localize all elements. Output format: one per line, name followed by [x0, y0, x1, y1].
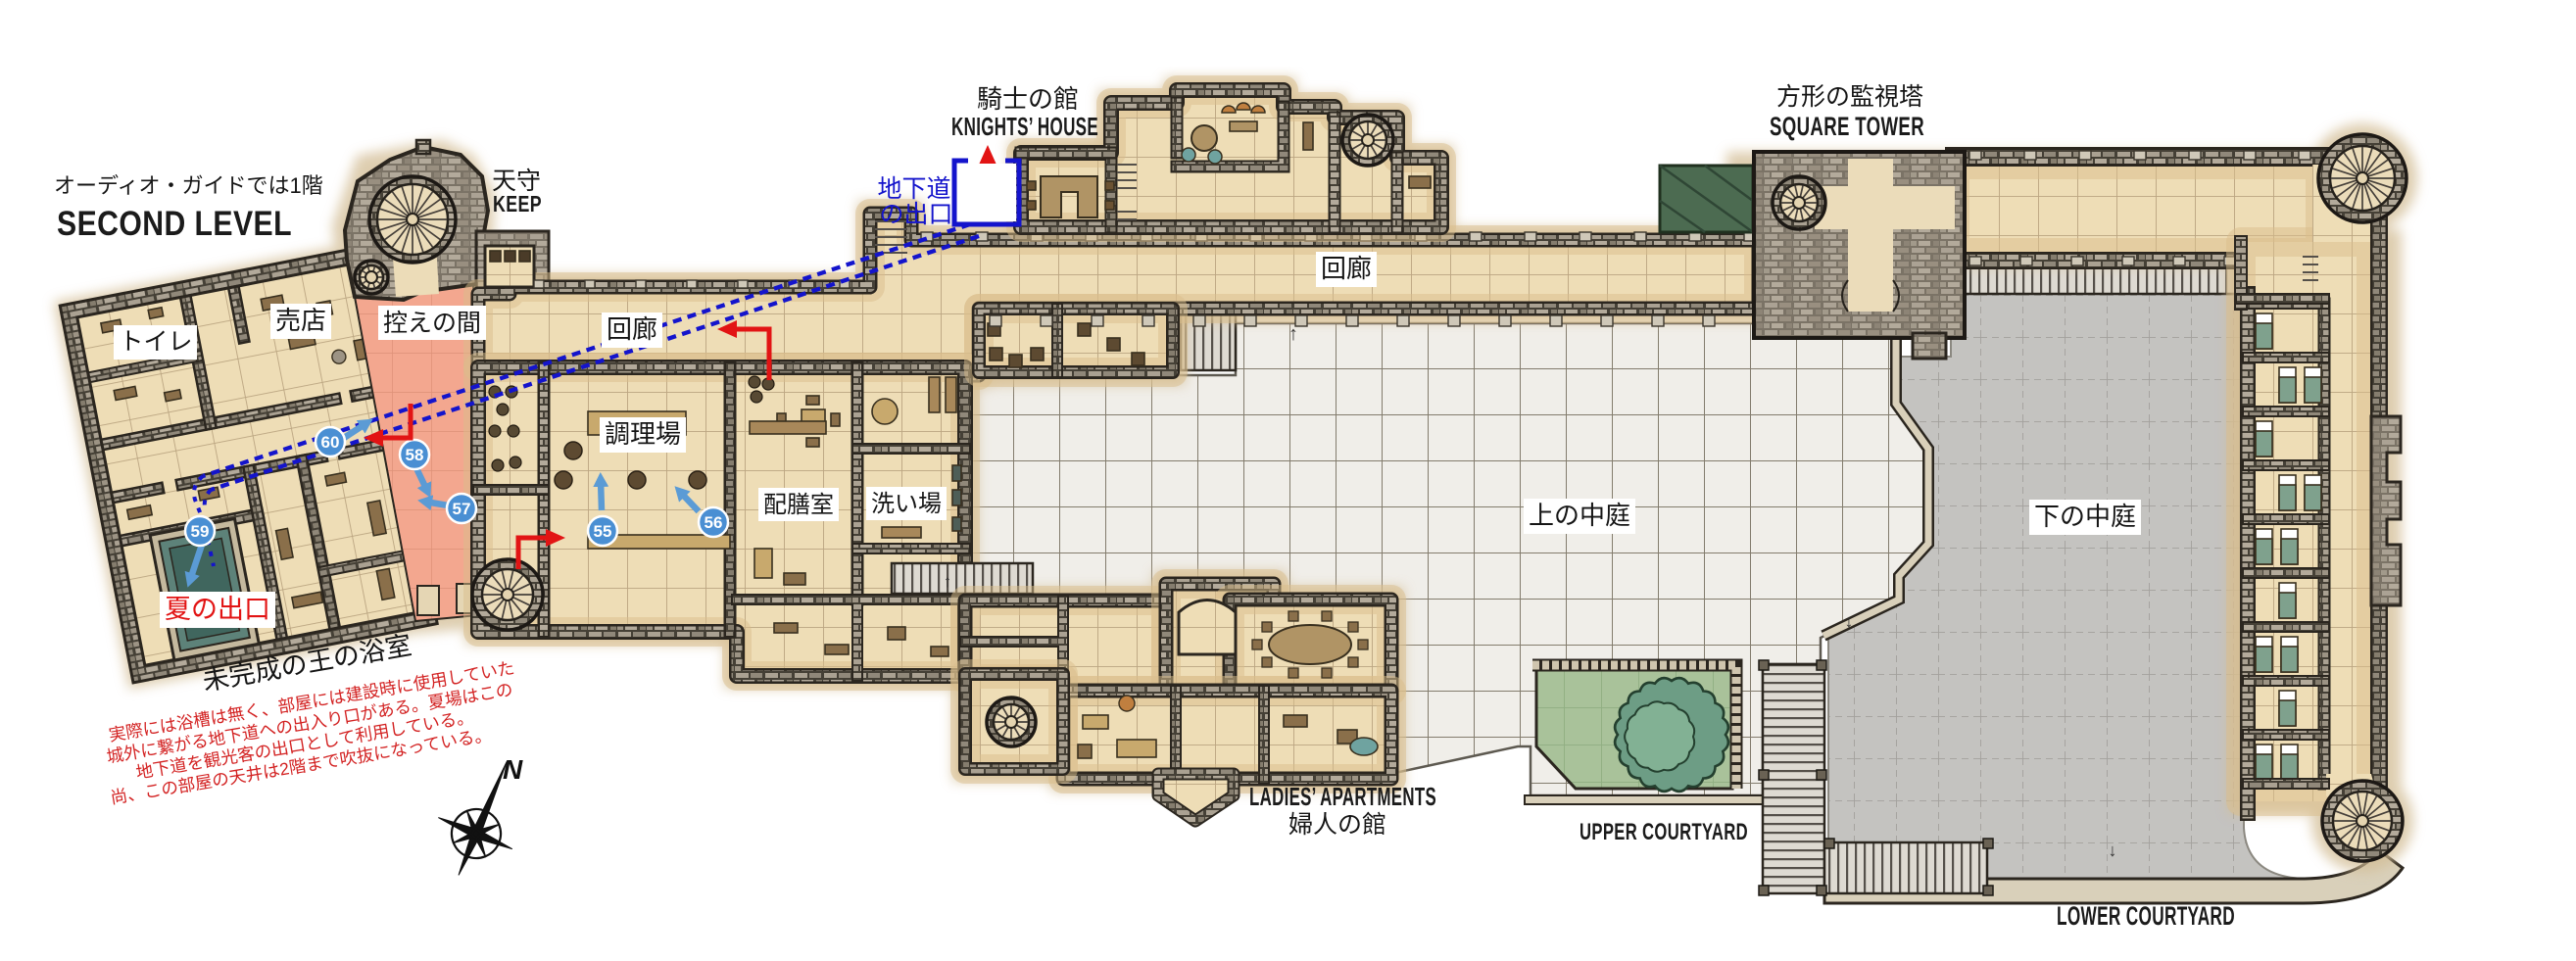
svg-text:N: N [503, 754, 523, 785]
svg-text:UPPER COURTYARD: UPPER COURTYARD [1580, 819, 1748, 845]
svg-text:60: 60 [321, 433, 340, 452]
svg-text:洗い場: 洗い場 [871, 491, 942, 517]
svg-text:オーディオ・ガイドでは1階: オーディオ・ガイドでは1階 [54, 173, 323, 198]
svg-text:夏の出口: 夏の出口 [165, 595, 270, 624]
svg-text:配膳室: 配膳室 [763, 492, 834, 518]
svg-text:婦人の館: 婦人の館 [1288, 811, 1386, 839]
svg-text:↓: ↓ [1845, 611, 1854, 631]
svg-text:59: 59 [191, 522, 210, 541]
svg-text:売店: 売店 [275, 306, 326, 335]
svg-text:57: 57 [453, 500, 471, 518]
svg-text:58: 58 [406, 446, 424, 464]
svg-text:上の中庭: 上の中庭 [1529, 501, 1630, 530]
svg-text:56: 56 [705, 513, 723, 532]
svg-text:SECOND LEVEL: SECOND LEVEL [57, 205, 292, 243]
svg-text:LOWER COURTYARD: LOWER COURTYARD [2057, 901, 2235, 931]
svg-text:下の中庭: 下の中庭 [2034, 502, 2136, 531]
svg-text:SQUARE TOWER: SQUARE TOWER [1770, 112, 1924, 141]
svg-text:回廊: 回廊 [607, 314, 657, 344]
svg-text:↓: ↓ [2109, 841, 2117, 860]
svg-text:↑: ↑ [944, 572, 952, 591]
svg-text:地下道: 地下道 [877, 175, 950, 203]
svg-text:KNIGHTS’ HOUSE: KNIGHTS’ HOUSE [951, 112, 1098, 141]
svg-text:騎士の館: 騎士の館 [977, 84, 1079, 114]
svg-text:方形の監視塔: 方形の監視塔 [1776, 83, 1923, 111]
svg-text:の出口: の出口 [879, 201, 952, 228]
svg-text:LADIES’ APARTMENTS: LADIES’ APARTMENTS [1249, 782, 1436, 811]
svg-text:調理場: 調理場 [605, 419, 681, 449]
svg-text:回廊: 回廊 [1321, 254, 1372, 283]
svg-text:55: 55 [594, 522, 612, 541]
svg-text:トイレ: トイレ [119, 328, 192, 356]
svg-text:KEEP: KEEP [493, 191, 542, 216]
svg-text:控えの間: 控えの間 [383, 310, 481, 337]
